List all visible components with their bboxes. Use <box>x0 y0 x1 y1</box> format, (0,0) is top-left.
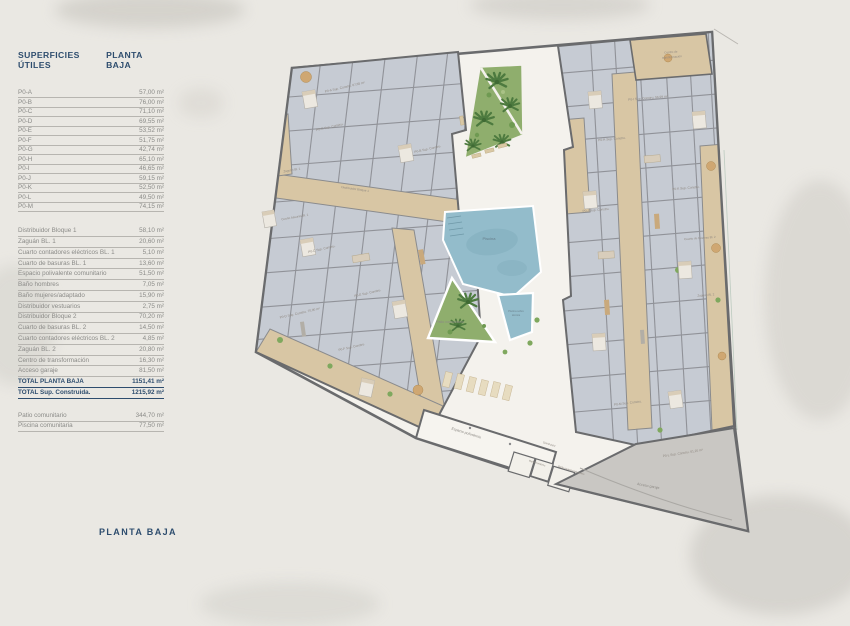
label-piscina-small: Piscina sobre <box>508 309 524 313</box>
label-patio-comunitario: Patio comunitario <box>436 320 464 324</box>
label-piscina: Piscina <box>483 236 497 241</box>
block-2 <box>552 30 740 450</box>
exterior-mark <box>714 29 738 44</box>
floor-plan: P0-A Sup. Constru. 67,65 m² P0-B Sup. Co… <box>0 0 850 620</box>
patio-table <box>413 385 423 395</box>
label-piscina-small2: técnica <box>512 313 521 317</box>
